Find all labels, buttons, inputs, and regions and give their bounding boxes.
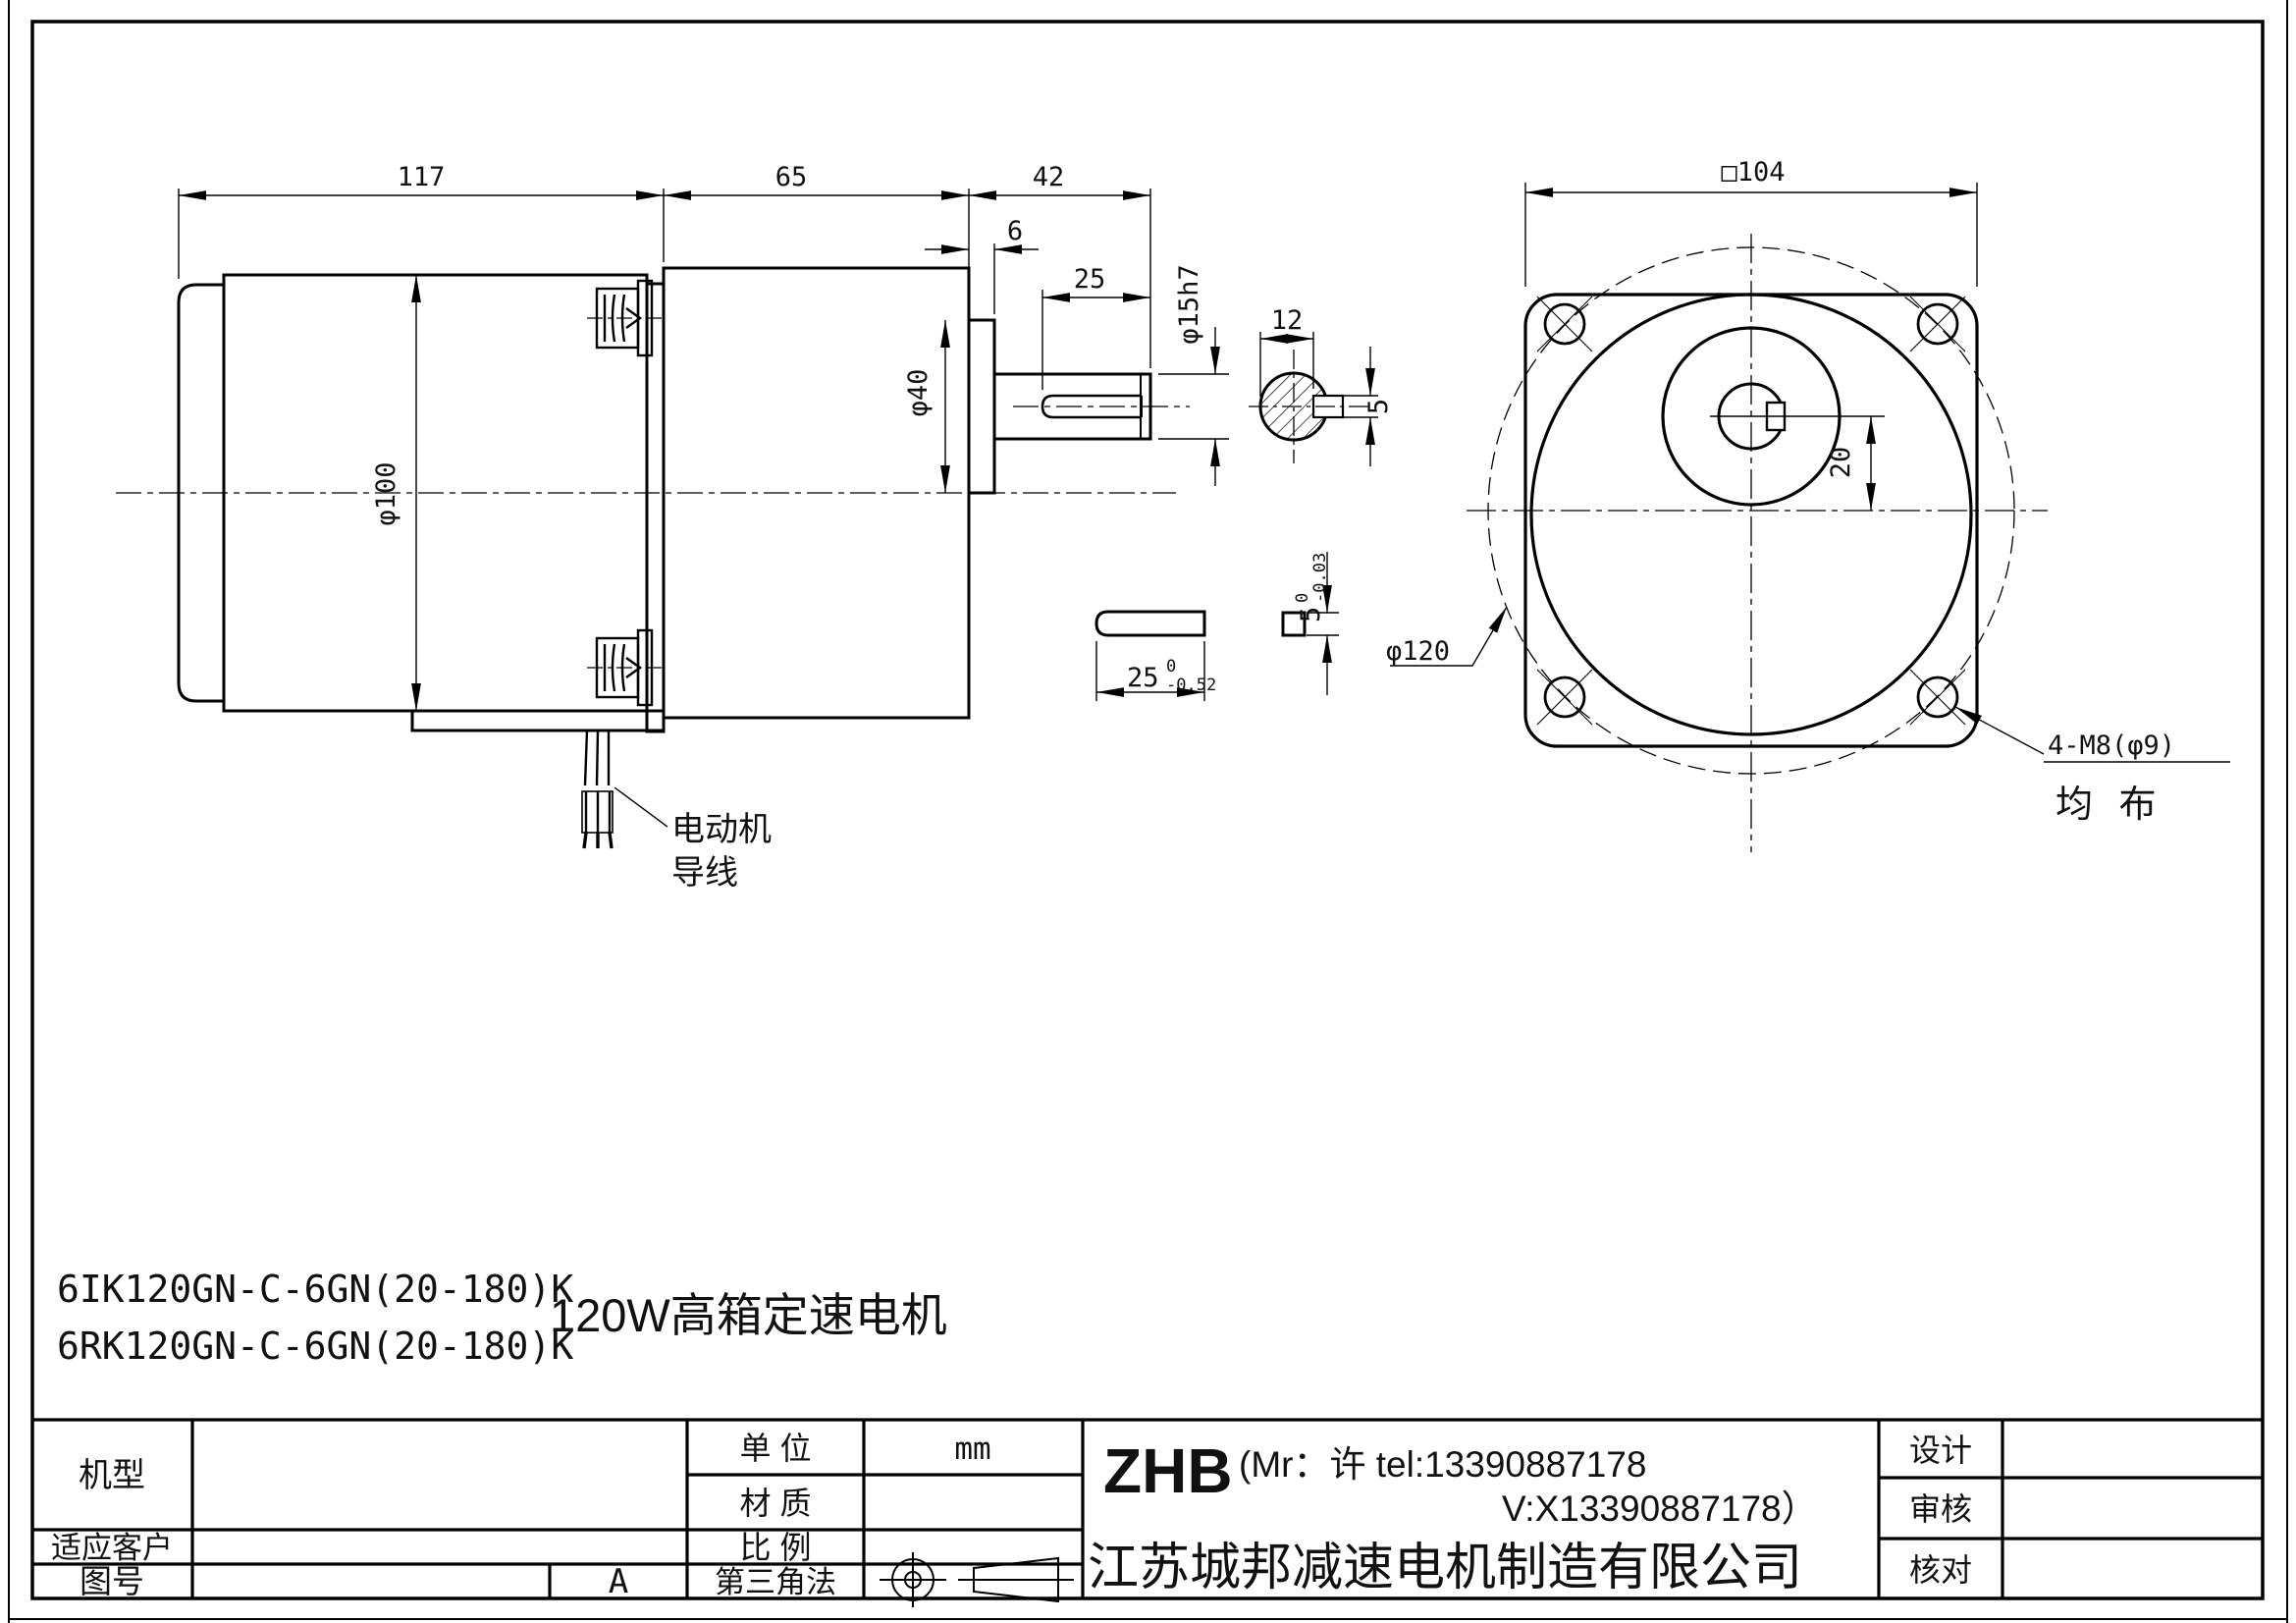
- tb-projection-label: 第三角法: [715, 1565, 836, 1599]
- dim-square104: □104: [1721, 157, 1785, 188]
- tb-scale-label: 比 例: [740, 1530, 812, 1565]
- key-height-tol-dn: -0.03: [1310, 553, 1330, 603]
- side-view-centerlines: [116, 318, 1190, 668]
- tb-brand: ZHB: [1103, 1435, 1233, 1506]
- holes-note: 均 布: [2056, 784, 2164, 826]
- title-block: 机型 适应客户 图号 A 单 位 材 质 比 例 第三角法 mm ZHB (Mr…: [32, 1420, 2263, 1607]
- tb-contact2: V:X13390887178）: [1502, 1488, 1818, 1529]
- key-length: 25: [1127, 663, 1159, 693]
- tb-contact1: (Mr：许 tel:13390887178: [1239, 1444, 1646, 1485]
- tb-design-label: 设计: [1909, 1433, 1972, 1468]
- dim-6: 6: [1007, 216, 1023, 246]
- tb-customer-label: 适应客户: [51, 1531, 173, 1565]
- tb-review-label: 审核: [1909, 1491, 1972, 1527]
- model-line2: 6RK120GN-C-6GN(20-180)K: [57, 1325, 573, 1368]
- lead-wire-label-1: 电动机: [671, 811, 772, 848]
- shaft-section-detail: 12 5: [1249, 305, 1394, 466]
- cad-canvas: 117 65 42 6 25 φ100 φ40 φ15h7 电动机 导线 12 …: [0, 0, 2296, 1623]
- dim-5-section: 5: [1363, 399, 1394, 414]
- dim-phi40: φ40: [903, 369, 934, 417]
- tb-revision: A: [609, 1562, 628, 1601]
- key-length-tol-dn: -0.52: [1166, 676, 1216, 695]
- drawing-sheet: 117 65 42 6 25 φ100 φ40 φ15h7 电动机 导线 12 …: [0, 0, 2296, 1623]
- side-view-dim-texts: 117 65 42 6 25 φ100 φ40 φ15h7 电动机 导线: [371, 162, 1204, 892]
- model-line1: 6IK120GN-C-6GN(20-180)K: [57, 1268, 573, 1311]
- key-detail: 25 0 -0.52 5 0 -0.03: [1096, 552, 1339, 701]
- dim-phi15h7: φ15h7: [1174, 264, 1204, 344]
- lead-wire-label-2: 导线: [671, 854, 738, 892]
- motor-lead-wires: [582, 730, 613, 848]
- dim-12: 12: [1271, 305, 1304, 336]
- dim-25: 25: [1074, 264, 1106, 295]
- tb-unit-label: 单 位: [740, 1431, 812, 1466]
- side-view: [179, 268, 1150, 848]
- tb-model-label: 机型: [79, 1457, 145, 1494]
- dim-20: 20: [1826, 447, 1856, 479]
- tb-drawingno-label: 图号: [80, 1563, 144, 1599]
- dim-phi120: φ120: [1386, 636, 1450, 667]
- tb-material-label: 材 质: [740, 1486, 812, 1521]
- drawing-frame: [9, 0, 2287, 1623]
- key-length-tol-up: 0: [1166, 657, 1176, 676]
- product-title: 120W高箱定速电机: [550, 1289, 947, 1341]
- front-view: 20 □104 φ120 4-M8(φ9) 均 布: [1386, 157, 2230, 852]
- model-notes: 6IK120GN-C-6GN(20-180)K 6RK120GN-C-6GN(2…: [57, 1268, 947, 1368]
- dim-42: 42: [1033, 162, 1065, 192]
- tb-check-label: 核对: [1909, 1552, 1972, 1588]
- tb-unit-value: mm: [954, 1432, 990, 1467]
- key-height-tol-up: 0: [1293, 593, 1312, 603]
- dim-phi100: φ100: [371, 461, 401, 525]
- tb-company: 江苏城邦减速电机制造有限公司: [1088, 1540, 1802, 1596]
- dim-117: 117: [398, 162, 446, 192]
- dim-65: 65: [775, 162, 808, 192]
- holes-callout: 4-M8(φ9): [2048, 730, 2175, 761]
- key-height: 5: [1296, 607, 1326, 622]
